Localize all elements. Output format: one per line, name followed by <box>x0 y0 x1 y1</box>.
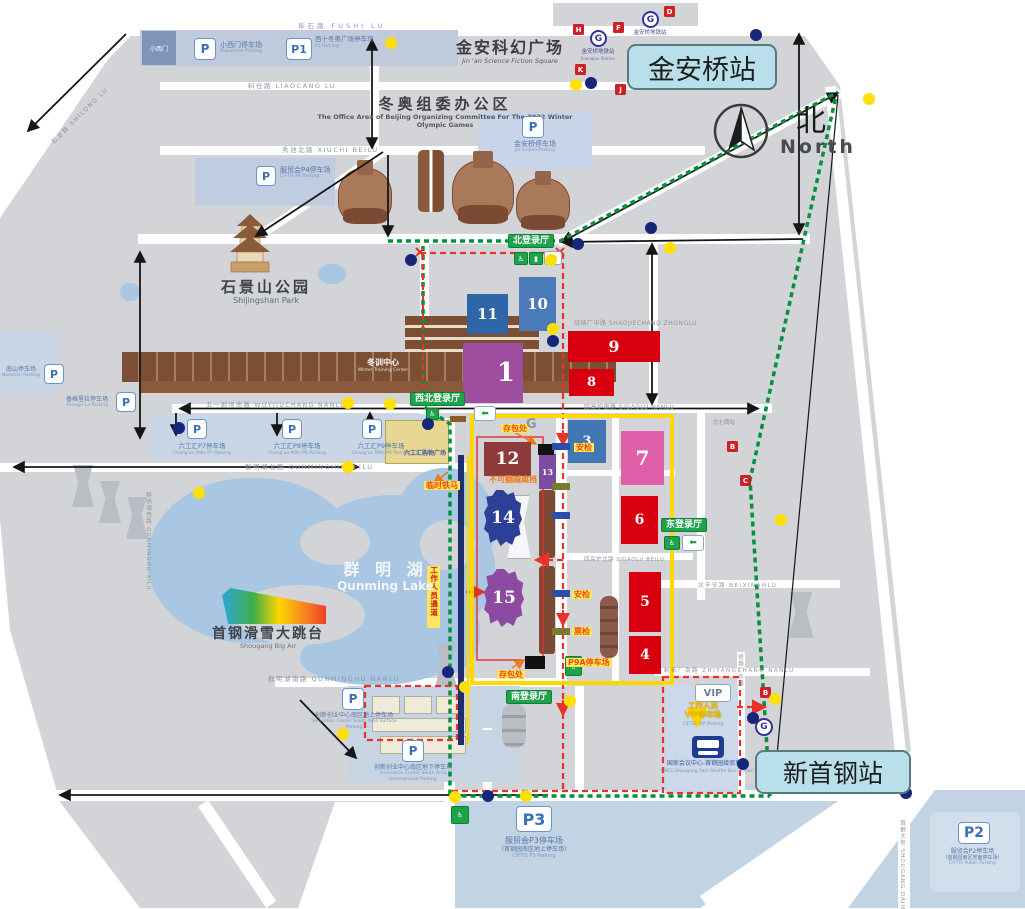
stop-dot-yellow <box>570 79 582 91</box>
street-zhiyangchang: 制氧厂南路 ZHIYANGCHANG NANLU <box>664 666 795 674</box>
hall-north: 北登录厅 <box>508 234 554 248</box>
big-air-label: 首钢滑雪大跳台 <box>206 626 330 643</box>
stop-dot-yellow <box>863 93 875 105</box>
stop-dot-yellow <box>342 461 354 473</box>
street-beixinan: 北辛安路 BEIXINANLU <box>698 581 777 589</box>
security-label-2: 安检 <box>572 590 592 599</box>
gate-g-label: G <box>526 417 537 433</box>
parking-label-p2: 服贸会P2停车场（首钢园南区地面停车场）CIFTIS Public Parkin… <box>920 848 1025 867</box>
jinanqiao-station-callout: 金安桥站 <box>627 44 777 90</box>
metro-station-label-1: 金安桥地铁站Jinanqiao Station <box>566 49 630 62</box>
stop-dot-yellow <box>520 790 532 802</box>
street-fushi: 阜石路 FUSHI LU <box>298 20 385 30</box>
street-shaojiechang: 烧结厂中路 SHAOJIECHANG ZHONGLU <box>574 318 697 327</box>
ticket-label: 票检 <box>572 627 592 636</box>
venue-1: 1 <box>463 343 523 403</box>
street-xiuchi: 秀池北路 XIUCHI BEILU <box>282 144 379 154</box>
parking-label-ciftis4: 服贸会P4停车场CIFTIS P4 Parking <box>280 166 380 180</box>
marker-letter-d: D <box>664 6 675 17</box>
security-gate-3 <box>552 590 570 597</box>
stop-dot-yellow <box>459 681 471 693</box>
parking-icon-jinanqiao: P <box>522 116 544 138</box>
parking-icon-p3: P3 <box>516 806 552 832</box>
parking-icon-lgh8: P <box>282 419 302 439</box>
big-air-label-en: Shougang Big Air <box>206 643 330 651</box>
parking-icon-shangrila: P <box>116 392 136 412</box>
compass-icon <box>712 102 770 160</box>
bag-storage-label-1: 存包处 <box>501 424 529 433</box>
parking-icon-xiaoximen: P <box>194 38 216 60</box>
stop-dot-navy <box>547 335 559 347</box>
shuttle-stop-bar <box>450 416 466 422</box>
marker-letter-k: K <box>575 64 586 75</box>
marker-letter-f: F <box>613 22 624 33</box>
marker-letter-j: J <box>615 84 626 95</box>
ticket-gate-2 <box>552 628 570 635</box>
shijingshan-park-label-en: Shijingshan Park <box>210 296 322 306</box>
stop-dot-yellow <box>769 693 781 705</box>
marker-letter-c: C <box>740 475 751 486</box>
hall-north-icon-2: ▮ <box>529 252 543 265</box>
venue-6: 6 <box>621 496 658 544</box>
shijingshan-park-label: 石景山公园 <box>210 278 322 296</box>
marker-letter-h: H <box>573 24 584 35</box>
parking-label-p1: 西十冬奥广场停车场P1 Parking <box>315 36 381 49</box>
hall-east: 东登录厅 <box>661 518 707 532</box>
metro-station-label-2: 金安桥地铁站 <box>620 30 680 37</box>
bag-storage-label-2: 存包处 <box>497 670 525 679</box>
southwest-gate-icon: ♿ <box>451 806 469 824</box>
stop-dot-navy <box>645 222 657 234</box>
stop-dot-navy <box>442 666 454 678</box>
parking-icon-nanshan: P <box>44 364 64 384</box>
street-sigaolu-bei: 四高炉北路 SIGAOLU BEILU <box>584 555 664 563</box>
parking-label-xiaoximen: 小西门停车场Xiaoximen Parking <box>220 41 292 55</box>
qunming-lake-label-en: Qunming Lake <box>328 579 443 593</box>
parking-label-shangrila: 香格里拉停车场Shangri-La Parking <box>60 396 114 409</box>
parking-label-p3: 服贸会P3停车场（首钢园南区地上停车场）CIFTIS P3 Parking <box>452 836 616 859</box>
marker-letter-b1: B <box>727 441 738 452</box>
parking-icon-p2: P2 <box>958 822 990 844</box>
hall-north-icon-1: ♿ <box>514 252 528 265</box>
stop-dot-navy <box>572 238 584 250</box>
street-qunminghu-bei: 群明湖北路 QUNMINGHU BEILU <box>245 461 373 471</box>
temp-barrier-label: 临时铁马 <box>424 481 460 490</box>
venue-5: 5 <box>629 572 661 632</box>
parking-label-innov-under: 创新创业中心南区地下停车场Innovation Center South Are… <box>366 764 460 782</box>
parking-label-jinanqiao: 金安桥停车场Jin'anqiao Parking <box>480 140 590 154</box>
venue-3: 3 <box>568 420 606 463</box>
parking-icon-p1: P1 <box>286 38 312 60</box>
hall-south: 南登录厅 <box>506 690 552 704</box>
security-label-1: 安检 <box>574 443 594 452</box>
vip-parking-label-en: CIFTIS VIP Parking <box>666 722 740 727</box>
scifi-square-label-en: Jin 'an Science Fiction Square <box>438 58 582 66</box>
bag-storage-box-2 <box>525 656 545 669</box>
venue-11: 11 <box>467 294 508 334</box>
venue-7: 7 <box>621 431 664 485</box>
stop-dot-yellow <box>193 487 205 499</box>
stop-dot-yellow <box>449 791 461 803</box>
hall-east-exit-icon: ⬅ <box>682 535 704 551</box>
stop-dot-yellow <box>384 398 396 410</box>
street-sigaolu-nan: 四高炉南路 SIGAOLU NANLU <box>584 402 674 411</box>
venue-9: 9 <box>568 331 660 362</box>
stop-dot-yellow <box>547 323 559 335</box>
vip-parking-label: 工作人员VIP停车场 <box>668 701 738 719</box>
metro-logo-icon-1: G <box>590 30 607 47</box>
stop-dot-navy <box>173 422 185 434</box>
security-gate-1 <box>552 443 570 450</box>
stop-dot-navy <box>422 418 434 430</box>
vip-badge: VIP <box>695 684 731 702</box>
venue-12: 12 <box>484 442 531 476</box>
compass-north-en: North <box>780 136 856 159</box>
metro-logo-icon-2: G <box>642 11 659 28</box>
shuttle-bus-icon <box>692 736 724 758</box>
parking-icon-innov-surface: P <box>342 688 364 710</box>
compass-north-cn: 北 <box>796 104 826 140</box>
stop-dot-yellow <box>385 37 397 49</box>
parking-icon-lgh7: P <box>187 419 207 439</box>
hall-northwest-exit-icon: ⬅ <box>474 406 496 421</box>
security-gate-2 <box>552 512 570 519</box>
xinshougang-station-callout: 新首钢站 <box>755 750 911 794</box>
parking-icon-ciftis4: P <box>256 166 276 186</box>
parking-label-lgh9: 六工汇P9停车场Chang'an Mills P9 Parking <box>328 443 434 456</box>
scifi-square-label: 金安科幻广场 <box>438 38 582 57</box>
stop-dot-yellow <box>545 254 557 266</box>
street-qunminghu-nan: 群明湖南路 QUNMINGHU NANLU <box>268 673 400 683</box>
venue-8: 8 <box>569 369 614 396</box>
stop-dot-navy <box>750 29 762 41</box>
street-dajie: 首钢大街 SHOUGANG DAJIE <box>898 820 906 905</box>
silos-stop-label: 北七筒站 <box>702 420 746 427</box>
stop-dot-yellow <box>564 695 576 707</box>
stop-dot-yellow <box>664 242 676 254</box>
parking-icon-lgh9: P <box>362 419 382 439</box>
stop-dot-yellow <box>337 728 349 740</box>
street-wuyijuchang: 五一剧场南路 WUYIJUCHANG NANLU <box>206 400 346 409</box>
stop-dot-yellow <box>342 397 354 409</box>
p9a-parking-label: P9A停车场 <box>566 658 612 667</box>
street-liaocang: 料仓路 LIAOCANG LU <box>248 80 336 90</box>
hall-east-icon: ♿ <box>664 536 680 550</box>
stop-dot-navy <box>585 77 597 89</box>
olympic-office-label: 冬奥组委办公区 <box>300 95 590 113</box>
stop-dot-navy <box>737 758 749 770</box>
hall-northwest: 西北登录厅 <box>410 392 465 406</box>
ticket-gate-1 <box>552 483 570 490</box>
stop-dot-navy <box>482 790 494 802</box>
stop-dot-yellow <box>775 514 787 526</box>
venue-4: 4 <box>629 636 661 674</box>
stop-dot-navy <box>405 254 417 266</box>
parking-label-innov-surface: 创新创业中心南区地上停车场Innovation Center South Are… <box>310 712 398 730</box>
stop-dot-navy <box>747 712 759 724</box>
no-climb-label: 不可翻越遮挡 <box>489 474 537 485</box>
street-qunminghu-xi: 群明湖西路 QUNMINGHU XILU <box>144 492 152 582</box>
parking-label-nanshan: 南山停车场Nanshan Parking <box>0 366 42 379</box>
qunming-lake-label: 群 明 湖 <box>328 560 443 579</box>
shougang-park-map: 小西门 冬训中心Winter Training Center <box>0 0 1025 909</box>
parking-icon-innov-under: P <box>402 740 424 762</box>
parking-label-lgh7: 六工汇P7停车场Chang'an Mills P7 Parking <box>150 443 254 456</box>
